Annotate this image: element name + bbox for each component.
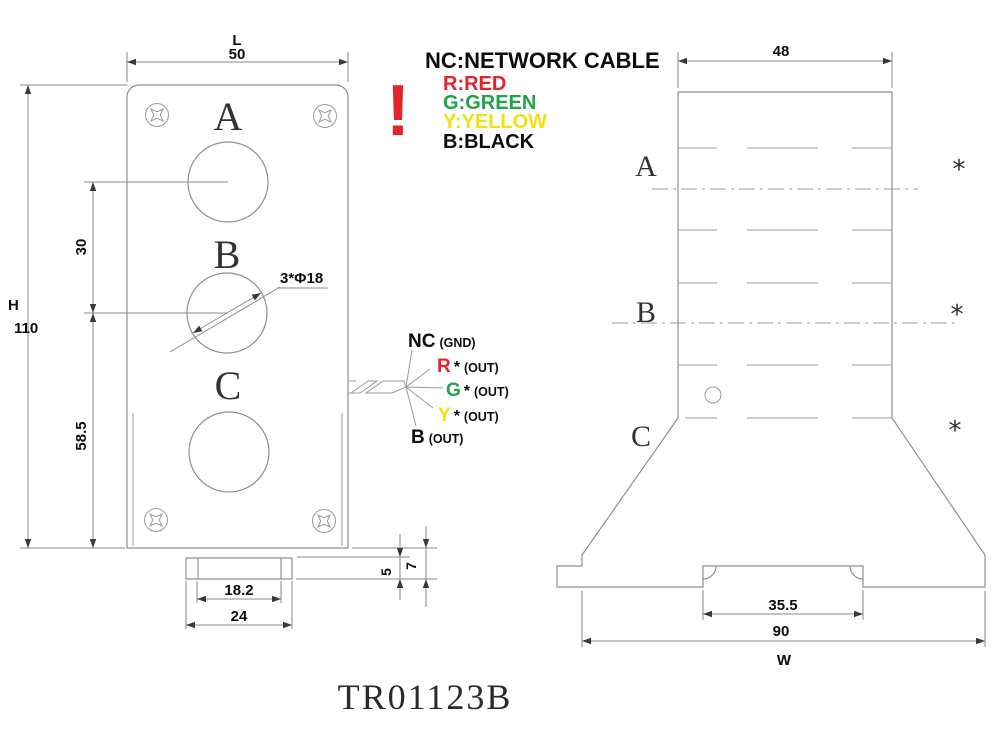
side-label-b: B — [636, 296, 656, 329]
dim-height-letter: H — [8, 297, 19, 314]
dim-foot-inner: 18.2 — [224, 582, 253, 599]
wire-lead-y-label: Y — [438, 405, 451, 426]
hole-note: 3*Φ18 — [280, 270, 323, 287]
asterisk-c-icon: * — [949, 416, 962, 446]
front-label-a: A — [214, 94, 243, 139]
wire-lead-r-note: (OUT) — [464, 361, 499, 375]
dim-base-width: 90 — [773, 623, 790, 640]
wire-lead-y-note: (OUT) — [464, 410, 499, 424]
side-label-c: C — [631, 420, 651, 453]
dim-height-value: 110 — [14, 320, 38, 337]
wire-lead-b-note: (OUT) — [429, 432, 464, 446]
legend-yellow: Y:YELLOW — [443, 111, 547, 133]
wire-lead-r-label: R — [437, 356, 451, 377]
legend-network-cable: NC:NETWORK CABLE — [425, 48, 660, 73]
dim-lower-span: 58.5 — [73, 421, 90, 450]
side-label-a: A — [635, 150, 657, 183]
dim-width-value: 50 — [229, 46, 246, 63]
dim-head-width: 48 — [773, 43, 790, 60]
dim-foot-step: 5 — [378, 568, 394, 576]
dim-slot-width: 35.5 — [768, 597, 797, 614]
wire-lead-r-star: * — [454, 359, 461, 376]
legend-black: B:BLACK — [443, 131, 535, 153]
dim-foot-outer: 24 — [231, 608, 248, 625]
wire-lead-g-note: (OUT) — [474, 385, 509, 399]
drawing-canvas: A B C L 50 H 110 30 58.5 18.2 24 5 7 — [0, 0, 1000, 729]
wire-lead-nc-note: (GND) — [439, 336, 475, 350]
wire-lead-g-label: G — [446, 380, 461, 401]
wire-lead-y-star: * — [454, 408, 461, 425]
warning-exclamation-icon: ! — [386, 71, 410, 151]
wire-lead-b-label: B — [411, 427, 425, 448]
dim-base-letter: W — [777, 652, 792, 669]
front-label-b: B — [214, 232, 241, 277]
asterisk-a-icon: * — [953, 155, 966, 185]
front-label-c: C — [215, 363, 242, 408]
part-number-title: TR01123B — [338, 677, 513, 717]
asterisk-b-icon: * — [951, 300, 964, 330]
wire-lead-g-star: * — [464, 383, 471, 400]
dim-hole-pitch: 30 — [73, 239, 90, 256]
technical-drawing-page: A B C L 50 H 110 30 58.5 18.2 24 5 7 — [0, 0, 1000, 729]
wire-lead-nc-label: NC — [408, 331, 436, 352]
dim-foot-height: 7 — [403, 562, 419, 570]
